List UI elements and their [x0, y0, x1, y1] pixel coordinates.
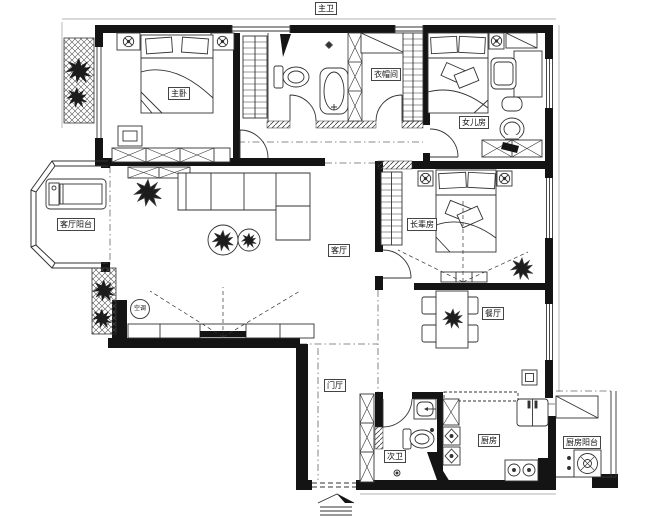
- bay-window: [31, 161, 108, 268]
- shelf: [361, 33, 405, 53]
- toilet: [403, 429, 434, 450]
- ac-unit-symbol: 空调: [130, 299, 150, 319]
- room-label-living-room: 客厅: [328, 244, 350, 257]
- base-cabinet-1: [443, 427, 460, 445]
- room-label-foyer: 门厅: [324, 379, 346, 392]
- fridge: [517, 399, 548, 426]
- shoe-cabinet: [360, 394, 374, 482]
- bathtub: [320, 68, 348, 114]
- pouf: [502, 97, 522, 111]
- washing-machine: [574, 450, 601, 477]
- dresser: [482, 140, 542, 157]
- dresser: [112, 148, 230, 162]
- toilet: [274, 66, 309, 88]
- room-label-kitchen: 厨房: [478, 434, 500, 447]
- balcony-cabinet: [556, 396, 598, 418]
- floor-plan-drawing: [0, 0, 650, 520]
- cabinet-x: [443, 399, 459, 425]
- daughter-room-furniture: [428, 33, 542, 157]
- living-room-furniture: [128, 167, 314, 338]
- room-label-master-bedroom: 主卧: [168, 87, 190, 100]
- entry-steps: [318, 494, 354, 515]
- corner-plant: [135, 180, 161, 205]
- room-label-kitchen-balcony: 厨房阳台: [563, 436, 601, 449]
- room-label-daughter-room: 女儿房: [459, 116, 489, 129]
- desk: [514, 51, 542, 97]
- desk-chair: [491, 58, 516, 89]
- room-label-master-bathroom: 主卫: [315, 2, 337, 15]
- master-bathroom-fixtures: [268, 33, 348, 121]
- wardrobe-rail: [243, 36, 267, 118]
- double-bed: [141, 35, 213, 113]
- floor-plan: 主卫 主卧 衣帽间 女儿房 客厅阳台 客厅 长辈房 餐厅 门厅 次卫 厨房 厨房…: [0, 0, 650, 520]
- hatched-walls: [267, 121, 423, 449]
- room-label-cloakroom: 衣帽间: [371, 68, 401, 81]
- storage-column: [348, 33, 362, 121]
- hanging-rail: [403, 33, 423, 121]
- tv-cabinet: [441, 272, 487, 282]
- room-label-elder-room: 长辈房: [407, 218, 437, 231]
- wardrobe-rail: [381, 172, 402, 245]
- shaft-box: [522, 370, 537, 385]
- bedroom-tv: [118, 126, 142, 146]
- floor-drain: [394, 470, 400, 476]
- top-cabinet: [506, 33, 537, 48]
- room-label-dining-room: 餐厅: [482, 307, 504, 320]
- dining-furniture: [422, 291, 537, 385]
- foyer-furniture: [318, 394, 374, 515]
- easy-chair: [500, 118, 524, 142]
- treadmill: [46, 179, 106, 209]
- double-bed: [436, 170, 496, 252]
- room-label-living-balcony: 客厅阳台: [57, 218, 95, 231]
- stove: [505, 460, 538, 481]
- faucet: [325, 41, 333, 49]
- room-label-second-bathroom: 次卫: [384, 450, 406, 463]
- single-bed: [428, 33, 488, 113]
- base-cabinet-2: [443, 447, 460, 465]
- elder-room-furniture: [381, 170, 533, 282]
- sink: [414, 399, 436, 419]
- coffee-tables: [208, 225, 260, 255]
